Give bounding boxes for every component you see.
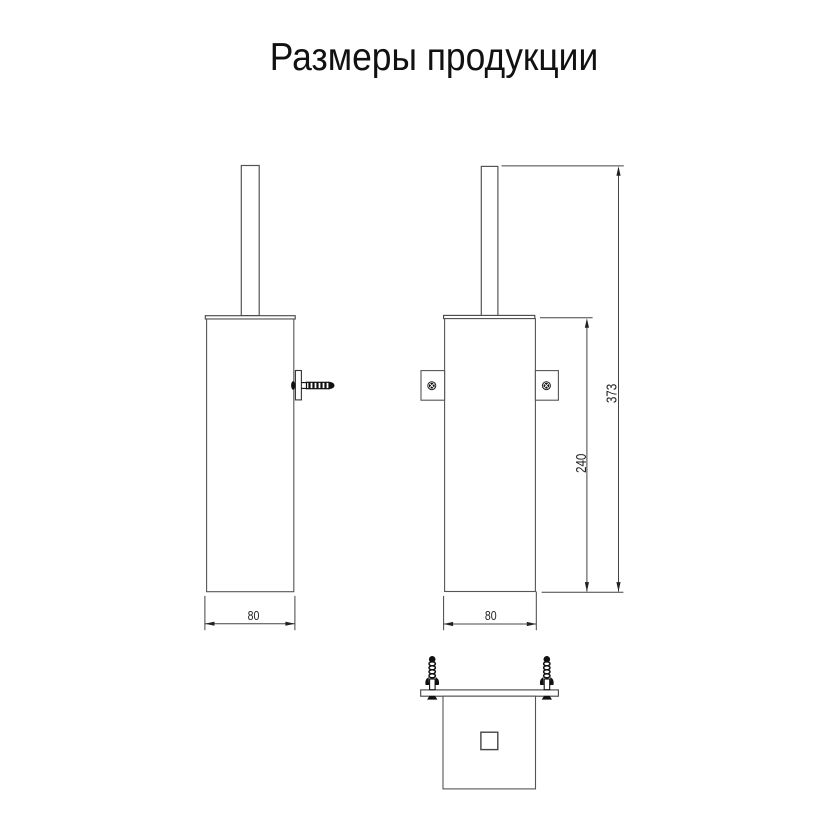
svg-text:80: 80: [485, 609, 497, 623]
svg-text:Размеры продукции: Размеры продукции: [270, 36, 599, 79]
svg-text:240: 240: [573, 454, 590, 473]
svg-text:80: 80: [248, 609, 260, 623]
svg-text:373: 373: [603, 384, 620, 403]
